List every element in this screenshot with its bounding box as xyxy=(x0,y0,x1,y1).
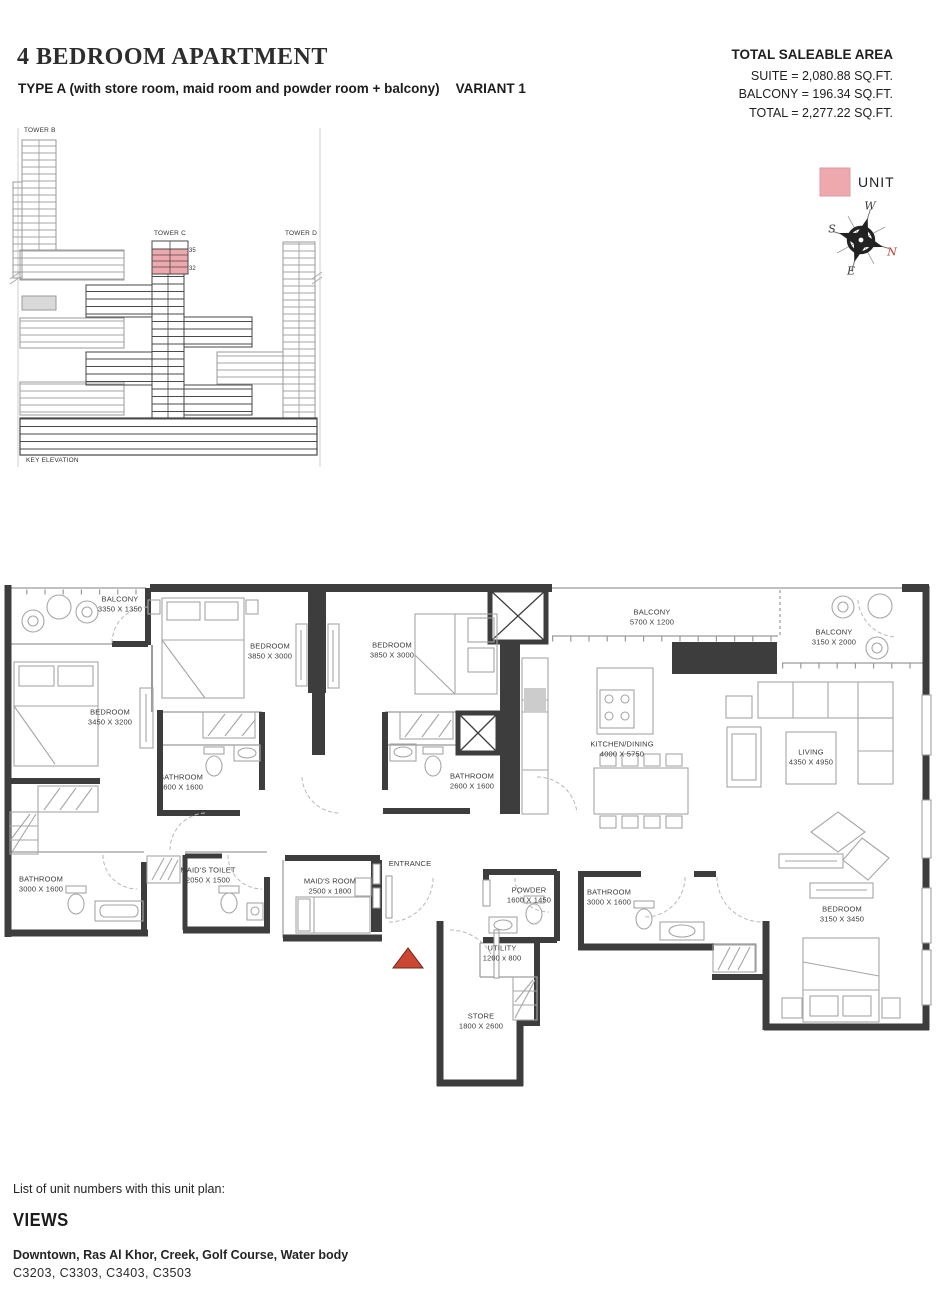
room-label-bedroom-1: BEDROOM3850 X 3000 xyxy=(248,641,292,661)
floor-32-label: 32 xyxy=(189,266,196,272)
unit-list-heading: List of unit numbers with this unit plan… xyxy=(13,1182,225,1196)
room-label-bathroom-1: BATHROOM2600 X 1600 xyxy=(159,772,203,792)
room-label-balcony-2: BALCONY5700 X 1200 xyxy=(630,607,674,627)
compass-west-label: W xyxy=(864,200,875,213)
key-elevation-caption: KEY ELEVATION xyxy=(26,457,79,464)
room-label-powder: POWDER1600 X 1450 xyxy=(507,885,551,905)
room-label-bedroom-3: BEDROOM3450 X 3200 xyxy=(88,707,132,727)
unit-numbers: C3203, C3303, C3403, C3503 xyxy=(13,1266,192,1280)
room-label-maids-toilet: MAID'S TOILET2050 X 1500 xyxy=(180,865,235,885)
key-elevation-diagram xyxy=(10,128,322,467)
room-label-bathroom-4: BATHROOM3000 X 1600 xyxy=(587,887,631,907)
compass-north-label: N xyxy=(887,246,897,259)
tower-d-label: TOWER D xyxy=(285,230,317,237)
views-list: Downtown, Ras Al Khor, Creek, Golf Cours… xyxy=(13,1248,348,1262)
room-label-bedroom-2: BEDROOM3850 X 3000 xyxy=(370,640,414,660)
page-graphics xyxy=(0,0,942,1296)
room-label-balcony-1: BALCONY3350 X 1350 xyxy=(98,594,142,614)
compass-east-label: E xyxy=(847,265,855,278)
room-label-bathroom-3: BATHROOM3000 X 1600 xyxy=(19,874,63,894)
tower-b-label: TOWER B xyxy=(24,127,56,134)
room-label-kitchen-dining: KITCHEN/DINING4000 X 5750 xyxy=(590,739,653,759)
views-heading: VIEWS xyxy=(13,1210,69,1231)
toilet-icons xyxy=(66,747,654,929)
tower-c-label: TOWER C xyxy=(154,230,186,237)
floor-35-label: 35 xyxy=(189,248,196,254)
room-label-store: STORE1800 X 2600 xyxy=(459,1011,503,1031)
room-label-living: LIVING4350 X 4950 xyxy=(789,747,833,767)
room-label-balcony-3: BALCONY3150 X 2000 xyxy=(812,627,856,647)
room-label-bathroom-2: BATHROOM2600 X 1600 xyxy=(450,771,494,791)
floorplan-page: 4 BEDROOM APARTMENT TYPE A (with store r… xyxy=(0,0,942,1296)
entrance-marker-icon xyxy=(393,948,423,968)
entrance-label: ENTRANCE xyxy=(389,859,431,869)
room-label-bedroom-4: BEDROOM3150 X 3450 xyxy=(820,904,864,924)
room-label-maids-room: MAID'S ROOM2500 x 1800 xyxy=(304,876,356,896)
compass-rose-icon xyxy=(833,209,889,271)
unit-legend-swatch xyxy=(820,168,850,196)
compass-south-label: S xyxy=(828,223,836,236)
room-label-utility: UTILITY1200 x 800 xyxy=(483,943,522,963)
unit-legend-label: UNIT xyxy=(858,174,895,190)
